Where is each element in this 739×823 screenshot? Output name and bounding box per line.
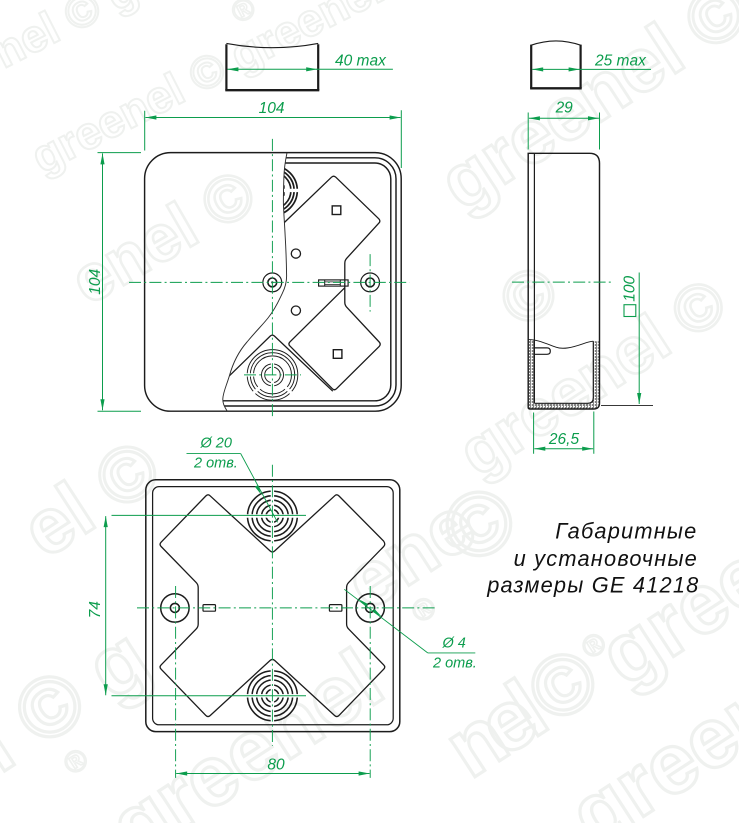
- svg-text:Ø 20: Ø 20: [200, 436, 232, 452]
- svg-text:26,5: 26,5: [548, 431, 580, 448]
- svg-text:29: 29: [555, 100, 574, 117]
- svg-text:25 max: 25 max: [594, 53, 647, 70]
- svg-text:2 отв.: 2 отв.: [193, 456, 238, 472]
- svg-text:80: 80: [267, 757, 285, 774]
- svg-text:Габаритные: Габаритные: [555, 519, 697, 544]
- svg-text:74: 74: [87, 601, 104, 619]
- svg-text:2 отв.: 2 отв.: [432, 656, 477, 672]
- svg-text:размеры GE 41218: размеры GE 41218: [486, 573, 699, 598]
- svg-text:Ø 4: Ø 4: [442, 636, 466, 652]
- svg-text:104: 104: [259, 100, 285, 117]
- svg-text:и установочные: и установочные: [514, 546, 698, 571]
- svg-text:100: 100: [622, 275, 639, 301]
- svg-text:40 max: 40 max: [335, 53, 387, 70]
- svg-text:104: 104: [87, 268, 104, 294]
